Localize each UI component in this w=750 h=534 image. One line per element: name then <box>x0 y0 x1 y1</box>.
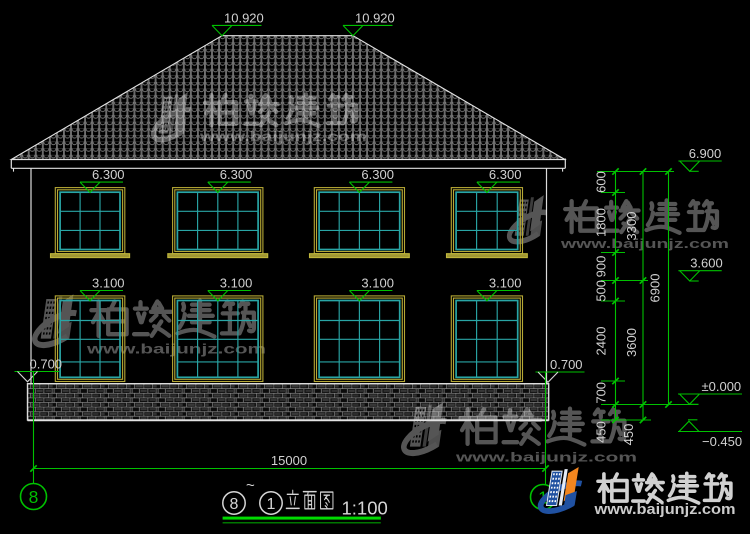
svg-text:±0.000: ±0.000 <box>702 379 742 394</box>
svg-text:6.900: 6.900 <box>689 146 722 161</box>
svg-text:1800: 1800 <box>594 208 609 237</box>
svg-text:3.100: 3.100 <box>92 276 125 291</box>
svg-text:0.700: 0.700 <box>30 357 63 372</box>
svg-text:www.baijunjz.com: www.baijunjz.com <box>86 341 266 357</box>
svg-text:1: 1 <box>267 496 276 513</box>
svg-text:700: 700 <box>594 382 609 404</box>
svg-text:3.100: 3.100 <box>489 276 522 291</box>
svg-text:www.baijunjz.com: www.baijunjz.com <box>593 502 735 518</box>
svg-text:−0.450: −0.450 <box>702 434 742 449</box>
svg-text:450: 450 <box>621 424 636 446</box>
svg-text:2400: 2400 <box>594 327 609 356</box>
svg-text:3.100: 3.100 <box>220 276 253 291</box>
svg-text:3300: 3300 <box>624 212 639 241</box>
svg-text:450: 450 <box>594 421 609 443</box>
svg-text:3.100: 3.100 <box>361 276 394 291</box>
svg-text:900: 900 <box>594 256 609 278</box>
svg-text:6.300: 6.300 <box>220 167 253 182</box>
svg-text:3.600: 3.600 <box>690 256 723 271</box>
svg-text:1:100: 1:100 <box>342 498 388 519</box>
svg-text:www.baijunjz.com: www.baijunjz.com <box>559 237 729 251</box>
svg-text:0.700: 0.700 <box>550 357 583 372</box>
svg-text:15000: 15000 <box>271 453 307 468</box>
svg-text:10.920: 10.920 <box>355 10 395 25</box>
svg-text:~: ~ <box>246 477 255 494</box>
svg-text:www.baijunjz.com: www.baijunjz.com <box>199 129 367 144</box>
svg-text:500: 500 <box>594 280 609 302</box>
svg-text:6.300: 6.300 <box>92 167 125 182</box>
svg-text:6900: 6900 <box>648 274 663 303</box>
svg-text:8: 8 <box>29 487 39 507</box>
svg-text:6.300: 6.300 <box>489 167 522 182</box>
svg-text:10.920: 10.920 <box>224 10 264 25</box>
svg-text:3600: 3600 <box>624 328 639 357</box>
svg-text:600: 600 <box>594 171 609 193</box>
svg-text:6.300: 6.300 <box>361 167 394 182</box>
svg-text:8: 8 <box>230 496 239 513</box>
